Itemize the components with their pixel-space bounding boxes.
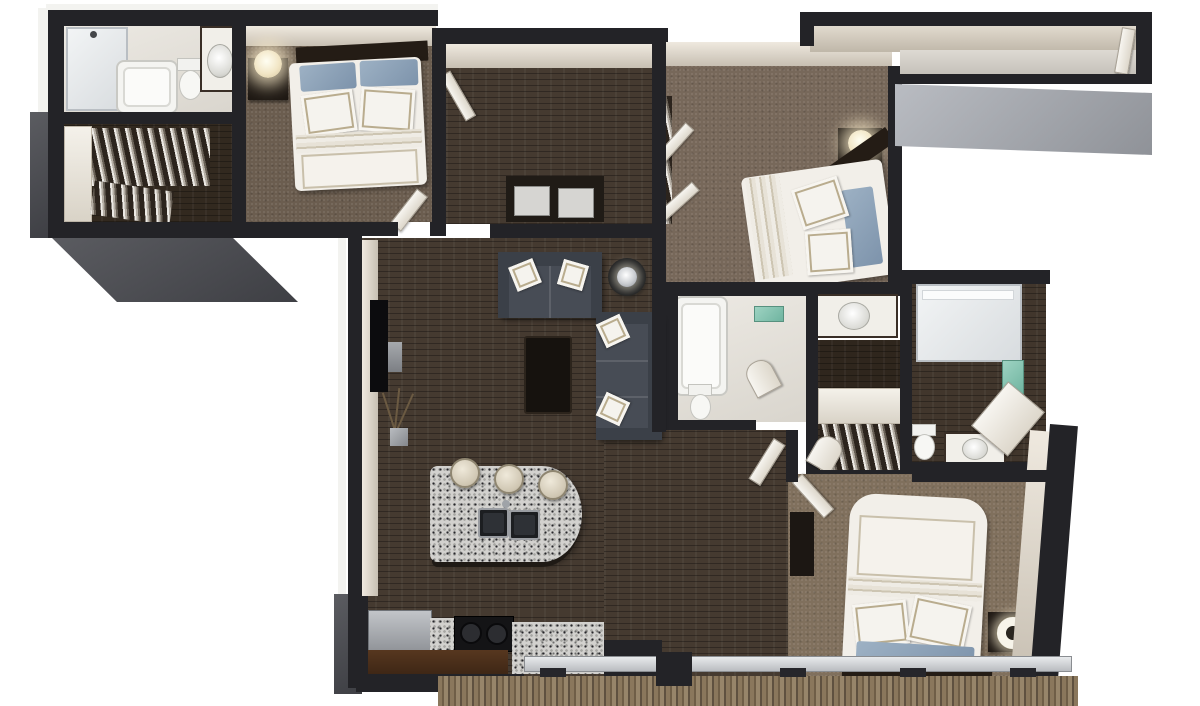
wall-living-west xyxy=(348,230,362,606)
loveseat xyxy=(498,252,602,318)
loveseat-back xyxy=(498,252,602,266)
burner-2 xyxy=(486,623,508,645)
island-sink-right xyxy=(509,510,540,540)
bathroom3-shower-ledge xyxy=(922,290,1014,300)
loveseat-arm-left xyxy=(498,252,509,318)
bathroom2-sink xyxy=(838,302,870,330)
master-blue-pillow-left xyxy=(299,62,357,92)
island-sink-left xyxy=(478,508,509,538)
wall-bathroom3-north xyxy=(900,270,1050,284)
master-duvet-stitch xyxy=(301,149,419,189)
bedroom3-duvet-stitch xyxy=(857,515,976,581)
wall-bedroom3-north xyxy=(912,470,1052,482)
wall-bathroom2-west xyxy=(666,282,678,434)
bar-stool-1 xyxy=(450,458,480,488)
exterior-trim-living-west xyxy=(338,230,346,610)
bathroom2-toilet-bowl xyxy=(690,394,711,420)
master-bathtub-basin xyxy=(123,67,171,107)
exterior-face-west xyxy=(30,112,50,238)
wall-hall-north xyxy=(438,28,668,44)
bedroom3-dresser xyxy=(790,512,814,576)
plant-vase xyxy=(390,428,408,446)
wall-corridor-north xyxy=(800,12,1150,26)
wall-corridor-south xyxy=(893,74,1152,84)
living-west-wallface xyxy=(362,240,378,596)
master-lamp xyxy=(254,50,282,78)
master-closet-shelf xyxy=(64,126,92,222)
wall-balcony-stub xyxy=(656,652,692,686)
floor-plan-canvas xyxy=(0,0,1200,706)
bedroom2-pillow-bottom xyxy=(805,228,854,275)
exterior-trim-west xyxy=(38,8,48,118)
wall-living-east xyxy=(652,236,666,432)
corridor-floor xyxy=(900,50,1136,76)
bathroom2-teal-mat xyxy=(754,306,784,322)
loveseat-cushion-line xyxy=(549,266,551,318)
wall-bathroom3-west xyxy=(900,282,912,474)
bar-stool-2 xyxy=(494,464,524,494)
closet2-shelf xyxy=(818,388,904,424)
loveseat-arm-right xyxy=(591,252,602,318)
coffee-table xyxy=(524,336,572,414)
sliding-door-stile-4 xyxy=(900,668,926,677)
master-pillow-right xyxy=(359,86,416,134)
side-table-lamp xyxy=(617,267,637,287)
bathroom3-toilet-bowl xyxy=(914,434,935,460)
hallway-north-wallface xyxy=(440,44,654,68)
island-sink-right-basin xyxy=(514,515,535,535)
island-sink-left-basin xyxy=(483,513,504,533)
wall-hall-west xyxy=(432,28,446,236)
master-toilet-bowl xyxy=(179,70,202,100)
showerhead-icon xyxy=(90,31,97,38)
wall-bedroom2-west xyxy=(652,42,666,236)
master-bathtub xyxy=(116,60,178,114)
island-faucet xyxy=(502,500,510,508)
washer-top xyxy=(514,186,550,216)
exterior-face-southwest xyxy=(50,236,298,302)
burner-1 xyxy=(460,622,482,644)
master-blue-pillow-right xyxy=(360,59,419,87)
sliding-door-stile-1 xyxy=(540,668,566,677)
master-pillow-left xyxy=(300,89,357,138)
corridor-north-wallface xyxy=(810,24,1138,52)
bathroom2-tub xyxy=(674,296,728,396)
refrigerator xyxy=(368,610,432,654)
wall-corridor-west-stub xyxy=(800,12,814,46)
bathroom3-sink xyxy=(962,438,988,460)
dryer-top xyxy=(558,188,594,218)
wall-bath-bedroom-divider xyxy=(232,22,246,224)
media-console xyxy=(388,342,402,372)
wall-hall-south xyxy=(490,224,668,238)
wall-bath-closet-divider xyxy=(58,112,238,124)
balcony-deck xyxy=(438,676,1078,706)
exterior-face-corridor-south xyxy=(895,84,1152,155)
master-sink xyxy=(207,44,233,78)
sliding-door-stile-3 xyxy=(780,668,806,677)
bar-stool-3 xyxy=(538,470,568,500)
tv xyxy=(370,300,388,392)
wall-master-south xyxy=(48,222,348,238)
master-closet-clothes xyxy=(92,128,210,186)
wall-bedroom3-west-stub xyxy=(786,430,798,482)
sofa-cushion-line-1 xyxy=(596,360,648,362)
counter-left xyxy=(430,618,456,652)
sliding-door-stile-5 xyxy=(1010,668,1036,677)
bathroom2-tub-basin xyxy=(681,303,721,389)
